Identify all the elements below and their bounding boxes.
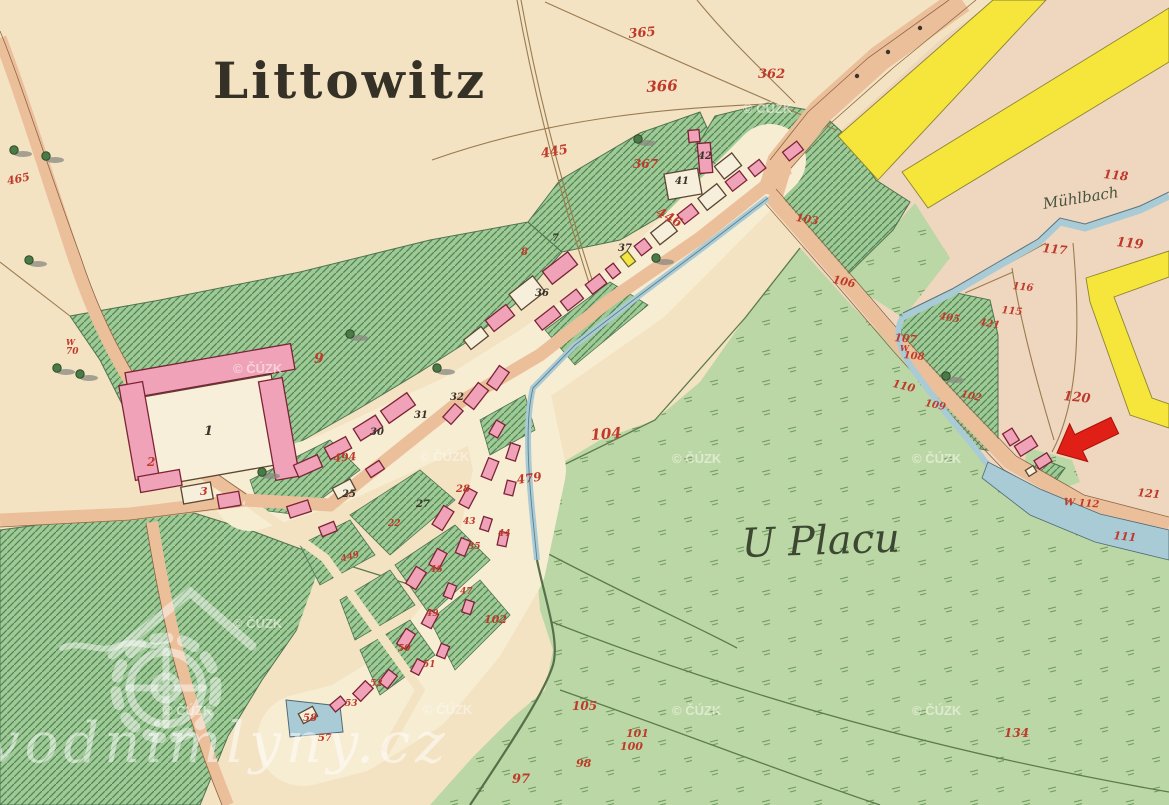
cadastral-map-canvas[interactable]: LittowitzU PlacuMühlbach3653663624453674… bbox=[0, 0, 1169, 805]
map-drawing bbox=[0, 0, 1169, 805]
